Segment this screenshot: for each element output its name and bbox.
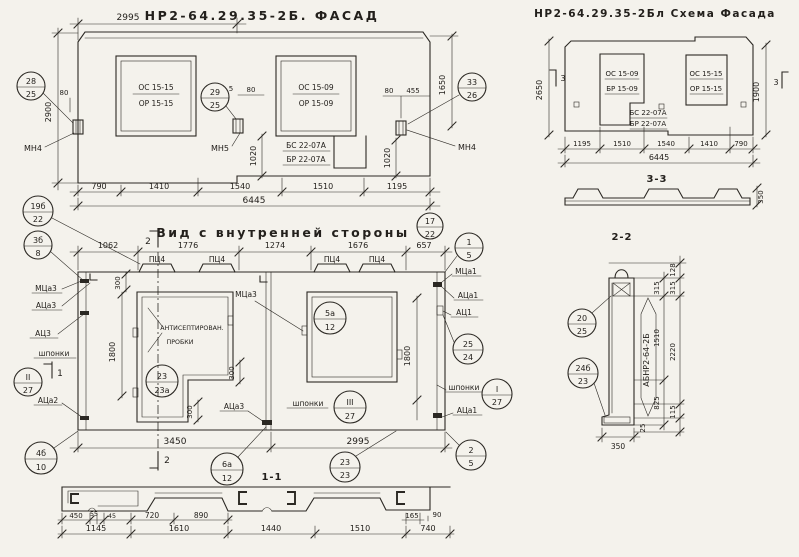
section-mark-3-right: 3 <box>773 72 788 88</box>
anchor-label: АЦа3 <box>36 301 57 310</box>
lintel-label: ПЦ4 <box>149 255 165 264</box>
facade-window-left: ОС 15-15 ОР 15-15 <box>116 56 196 136</box>
callout-top: 1 <box>466 238 471 247</box>
dim-label: 2900 <box>44 102 53 122</box>
callout-top: 5а <box>325 309 335 318</box>
dim-label: 6445 <box>649 153 669 162</box>
dim-label: 1195 <box>387 182 407 191</box>
facade-lintel-labels: БС 22-07А БР 22-07А <box>283 141 330 165</box>
dim-label: 300 <box>186 405 194 418</box>
callout-20-25: 20 25 <box>568 296 611 337</box>
inner-window-right <box>302 292 402 382</box>
schema-dim-1900: 1900 <box>752 41 770 139</box>
callout-II-27: II 27 <box>14 368 42 396</box>
dim-label: 1800 <box>108 342 117 362</box>
dim-label: 6445 <box>243 196 266 206</box>
callout-III-27: III 27 <box>334 391 366 423</box>
dim-label: 1274 <box>265 241 285 250</box>
callout-bottom: 10 <box>36 463 46 472</box>
dim-label: 1540 <box>230 182 250 191</box>
dim-label: 790 <box>91 182 106 191</box>
callout-4b-10: 4б 10 <box>25 431 78 474</box>
window-mark: ОС 15-09 <box>606 70 639 78</box>
inner-bottom-dims: 3450 2995 <box>70 432 452 452</box>
blueprint-page: НР2-64.29.35-2Б. ФАСАД 2995 2900 1650 ОС… <box>0 0 799 557</box>
facade-dim-2900: 2900 <box>44 28 78 190</box>
callout-bottom: 23а <box>154 386 169 395</box>
anchor-label: МЦа3 <box>35 284 57 293</box>
section-mark-3-left: 3 <box>550 70 566 86</box>
lintel-label: ПЦ4 <box>369 255 385 264</box>
dim-label: 90 <box>433 511 442 519</box>
callout-top: II <box>26 373 31 382</box>
dim-label: 1776 <box>178 241 198 250</box>
section-1-1-profile <box>62 487 450 511</box>
anchor-label: АЦа3 <box>224 402 245 411</box>
dim-label: 80 <box>385 87 394 95</box>
inner-top-dims: 1062 1776 1274 1676 657 <box>70 241 452 270</box>
loop-label: МН5 <box>211 144 229 153</box>
callout-bottom: 22 <box>425 230 435 239</box>
callout-bottom: 12 <box>325 323 335 332</box>
callout-5a-12: 5а 12 <box>314 302 346 334</box>
section-mark-label: 2 <box>164 456 170 466</box>
dim-label: 350 <box>611 442 626 451</box>
anchor-label: МЦа1 <box>455 267 477 276</box>
section-3-3: 3-3 350 <box>565 174 765 209</box>
dim-label: 1900 <box>752 82 761 102</box>
callout-top: 23 <box>157 372 167 381</box>
plug-note: АНТИСЕПТИРОВАН. <box>160 325 223 332</box>
dim-label: 825 <box>653 396 661 409</box>
lintel-mark: БС 22-07А <box>629 109 666 117</box>
facade-dim-1650: 1650 <box>430 32 458 130</box>
dim-label: 1510 <box>653 329 661 347</box>
dim-label: 1676 <box>348 241 368 250</box>
dim-label: 657 <box>416 241 431 250</box>
callout-2-5: 2 5 <box>446 432 486 470</box>
section-mark-label: 1 <box>57 369 63 379</box>
blueprint-canvas: НР2-64.29.35-2Б. ФАСАД 2995 2900 1650 ОС… <box>0 0 799 557</box>
section-2-2: 2-2 20 25 24б 23 АБНР2-64-2Б <box>568 232 686 451</box>
dim-label: 80 <box>60 89 69 97</box>
callout-bottom: 27 <box>345 412 355 421</box>
facade-title: НР2-64.29.35-2Б. ФАСАД <box>145 8 380 23</box>
dim-label: 350 <box>757 190 765 203</box>
inner-lintels: ПЦ4 ПЦ4 ПЦ4 ПЦ4 <box>139 255 395 272</box>
section-title: 1-1 <box>261 472 282 483</box>
dim-label: 1195 <box>573 140 591 148</box>
callout-bottom: 24 <box>463 353 473 362</box>
dim-label: 2995 <box>117 13 140 23</box>
callout-bottom: 5 <box>466 251 471 260</box>
loop-label: МН4 <box>24 144 42 153</box>
dim-label: 315 <box>653 281 661 294</box>
window-mark: ОР 15-09 <box>299 99 334 108</box>
window-mark: ОР 15-15 <box>139 99 174 108</box>
schema-drawing: НР2-64.29.35-2Бл Схема Фасада ОС 15-09 Б… <box>534 8 788 209</box>
callout-24b-23: 24б 23 <box>568 358 605 415</box>
inner-dim-1800-left: 1800 <box>108 290 126 400</box>
callout-bottom: 25 <box>210 101 220 110</box>
callout-top: 17 <box>425 217 435 226</box>
window-mark: ОС 15-09 <box>298 83 334 92</box>
callout-bottom: 8 <box>35 249 40 258</box>
dim-label: 1145 <box>86 524 106 533</box>
callout-top: 29 <box>210 88 220 97</box>
section-1-1-dims-row1: 450 55 45 720 890 165 90 <box>58 511 441 524</box>
facade-dim-1020-right: 1020 <box>383 136 400 180</box>
callout-I-27: I 27 <box>482 379 512 409</box>
dim-label: 315 <box>669 281 677 294</box>
callout-top: 28 <box>26 77 36 86</box>
dim-label: 1410 <box>700 140 718 148</box>
anchor-label: АЦа1 <box>457 406 478 415</box>
section-mark-1: 1 <box>44 362 63 379</box>
key-label: шпонки <box>293 399 324 408</box>
callout-top: 3б <box>33 236 43 245</box>
lintel-mark: БР 22-07А <box>287 155 327 164</box>
callout-23-23a: 23 23а <box>146 365 178 397</box>
dim-label: 455 <box>406 87 419 95</box>
lintel-mark: БС 22-07А <box>286 141 327 150</box>
callout-top: 25 <box>463 340 473 349</box>
callout-top: 19б <box>30 202 45 211</box>
callout-bottom: 12 <box>222 474 232 483</box>
section-mark-label: 3 <box>560 74 565 83</box>
callout-bottom: 25 <box>577 327 587 336</box>
dim-label: 2995 <box>347 437 370 447</box>
dim-label: 790 <box>734 140 747 148</box>
callout-17-22: 17 22 <box>417 213 443 239</box>
shear-key-tabs <box>80 279 443 425</box>
anchor-label: АЦа1 <box>458 291 479 300</box>
callout-top: III <box>346 398 353 407</box>
dim-label: 1510 <box>613 140 631 148</box>
callout-6a-12: 6а 12 <box>211 427 266 485</box>
callout-bottom: 27 <box>492 398 502 407</box>
section-mark-2-bottom: 2 <box>150 452 170 470</box>
key-label: шпонки <box>449 383 480 392</box>
callout-bottom: 5 <box>468 459 473 468</box>
window-mark: ОС 15-15 <box>690 70 723 78</box>
dim-label: 450 <box>69 512 82 520</box>
window-mark: ОС 15-15 <box>138 83 174 92</box>
dim-label: 128 <box>669 263 677 276</box>
callout-bottom: 27 <box>23 386 33 395</box>
callout-top: 2 <box>468 446 473 455</box>
window-mark: БР 15-09 <box>606 85 638 93</box>
section-mark-label: 2 <box>145 237 151 247</box>
dim-label: 300 <box>228 366 236 379</box>
section-mark-label: 3 <box>773 78 778 87</box>
callout-25-24: 25 24 <box>443 315 483 364</box>
inner-dim-300-topleft: 300 <box>114 270 130 294</box>
schema-title: НР2-64.29.35-2Бл Схема Фасада <box>534 8 776 20</box>
dim-label: 115 <box>669 405 677 418</box>
dim-label: 2650 <box>535 80 544 100</box>
anchor-label: АЦа2 <box>38 396 59 405</box>
inner-view-drawing: Вид с внутренней стороны 2 1062 1776 127… <box>14 196 512 485</box>
window-mark: ОР 15-15 <box>690 85 722 93</box>
dim-label: 55 <box>90 511 98 518</box>
callout-top: I <box>496 385 498 394</box>
anchor-label: АЦ1 <box>456 308 472 317</box>
callout-bottom: 26 <box>467 91 477 100</box>
dim-label: 1062 <box>98 241 118 250</box>
panel-mark: АБНР2-64-2Б <box>642 333 651 386</box>
dim-label: 1610 <box>169 524 189 533</box>
dim-label: 1410 <box>149 182 169 191</box>
callout-top: 23 <box>340 458 350 467</box>
callout-bottom: 25 <box>26 90 36 99</box>
callout-3b-8: 3б 8 <box>24 231 84 281</box>
callout-33-26: 33 26 <box>408 73 486 124</box>
plug-note: ПРОБКИ <box>167 339 194 346</box>
schema-lintel-labels: БС 22-07А БР 22-07А <box>629 109 667 129</box>
inner-dim-1800-right: 1800 <box>403 294 421 420</box>
anchor-label: АЦ3 <box>35 329 51 338</box>
inner-view-title: Вид с внутренней стороны <box>156 225 409 240</box>
dim-label: 1540 <box>657 140 675 148</box>
dim-label: 1510 <box>350 524 370 533</box>
facade-drawing: НР2-64.29.35-2Б. ФАСАД 2995 2900 1650 ОС… <box>17 8 486 210</box>
callout-top: 20 <box>577 314 587 323</box>
callout-top: 33 <box>467 78 477 87</box>
lintel-label: ПЦ4 <box>324 255 340 264</box>
schema-bottom-dims: 1195 1510 1540 1410 790 6445 <box>558 127 760 167</box>
dim-label: 80 <box>247 86 256 94</box>
inner-window-left: АНТИСЕПТИРОВАН. ПРОБКИ <box>133 292 233 422</box>
section-1-1-dims-row2: 1145 1610 1440 1510 740 <box>58 524 454 538</box>
callout-top: 24б <box>575 364 590 373</box>
loop-label: МН4 <box>458 143 476 152</box>
dim-label: 165 <box>405 512 418 520</box>
dim-label: 1020 <box>383 148 392 168</box>
lintel-mark: БР 22-07А <box>630 120 667 128</box>
schema-dim-2650: 2650 <box>535 37 553 139</box>
dim-label: 740 <box>420 524 435 533</box>
anchor-label: МЦа3 <box>235 290 257 299</box>
dim-label: 1440 <box>261 524 281 533</box>
schema-window-right: ОС 15-15 ОР 15-15 <box>686 55 727 105</box>
callout-bottom: 22 <box>33 215 43 224</box>
callout-bottom: 23 <box>578 377 588 386</box>
dim-label: 3450 <box>164 437 187 447</box>
dim-label: 25 <box>639 424 647 433</box>
callout-bottom: 23 <box>340 471 350 480</box>
dim-label: 890 <box>194 511 209 520</box>
section-title: 3-3 <box>646 174 667 185</box>
dim-label: 2220 <box>669 343 677 361</box>
dim-label: 5 <box>229 85 233 93</box>
section-title: 2-2 <box>611 232 632 243</box>
callout-top: 6а <box>222 460 232 469</box>
dim-label: 1510 <box>313 182 333 191</box>
dim-label: 720 <box>145 511 160 520</box>
key-label: шпонки <box>39 349 70 358</box>
dim-label: 1800 <box>403 346 412 366</box>
section-2-2-profile <box>602 270 634 425</box>
dim-label: 45 <box>108 513 116 520</box>
callout-top: 4б <box>36 449 46 458</box>
inner-panel-outline <box>78 272 445 430</box>
dim-label: 300 <box>114 276 122 289</box>
inner-dim-300-step: 300 <box>228 358 244 386</box>
dim-label: 1650 <box>438 75 447 95</box>
section-1-1: 1-1 450 55 45 720 890 165 90 1145 <box>58 472 454 538</box>
lintel-label: ПЦ4 <box>209 255 225 264</box>
dim-label: 1020 <box>249 146 258 166</box>
facade-dim-1020-left: 1020 <box>249 132 266 180</box>
